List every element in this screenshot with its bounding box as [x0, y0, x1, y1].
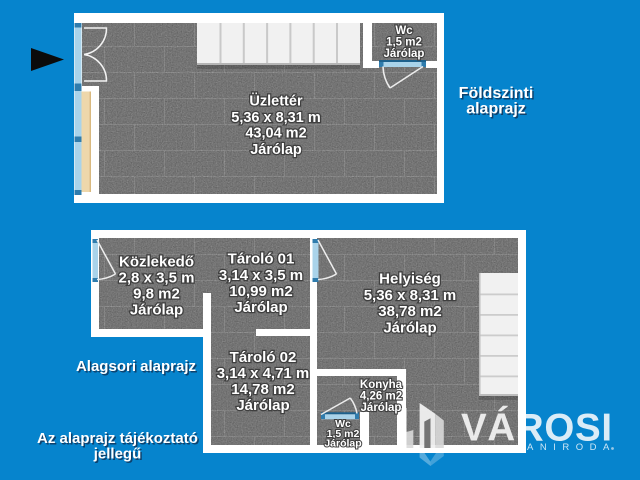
svg-text:Járólap: Járólap — [383, 319, 436, 336]
svg-text:2,8 x 3,5 m: 2,8 x 3,5 m — [119, 270, 195, 287]
svg-text:Helyiség: Helyiség — [379, 271, 441, 288]
svg-text:4,26 m2: 4,26 m2 — [360, 391, 402, 403]
svg-text:Konyha: Konyha — [360, 379, 403, 391]
svg-text:Járólap: Járólap — [324, 438, 361, 450]
svg-text:Járólap: Járólap — [130, 302, 183, 319]
svg-text:Tároló 02: Tároló 02 — [230, 349, 297, 366]
svg-text:Járólap: Járólap — [384, 48, 425, 60]
svg-text:10,99 m2: 10,99 m2 — [229, 283, 292, 300]
svg-text:Járólap: Járólap — [236, 397, 289, 414]
svg-text:Alagsori alaprajz: Alagsori alaprajz — [76, 358, 196, 375]
svg-text:43,04 m2: 43,04 m2 — [245, 126, 306, 142]
svg-text:9,8 m2: 9,8 m2 — [133, 286, 180, 303]
svg-text:Járólap: Járólap — [250, 142, 302, 158]
svg-text:ANIRODA: ANIRODA — [527, 442, 616, 453]
svg-text:5,36 x 8,31 m: 5,36 x 8,31 m — [231, 110, 321, 126]
svg-text:alaprajz: alaprajz — [466, 101, 526, 118]
svg-text:Az alaprajz tájékoztató: Az alaprajz tájékoztató — [37, 430, 198, 447]
svg-text:Közlekedő: Közlekedő — [119, 254, 194, 271]
svg-text:3,14 x 3,5 m: 3,14 x 3,5 m — [219, 267, 303, 284]
svg-text:1,5 m2: 1,5 m2 — [386, 37, 422, 49]
svg-text:Járólap: Járólap — [361, 402, 402, 414]
svg-text:Földszinti: Földszinti — [459, 85, 534, 102]
svg-text:Tároló 01: Tároló 01 — [228, 251, 295, 268]
svg-text:3,14 x 4,71 m: 3,14 x 4,71 m — [217, 365, 310, 382]
svg-text:Járólap: Járólap — [234, 299, 287, 316]
svg-text:38,78 m2: 38,78 m2 — [378, 303, 441, 320]
svg-text:14,78 m2: 14,78 m2 — [231, 381, 294, 398]
svg-text:Üzlettér: Üzlettér — [249, 93, 303, 110]
svg-text:Wc: Wc — [395, 25, 413, 37]
svg-text:jellegű: jellegű — [93, 446, 142, 463]
svg-text:5,36 x 8,31 m: 5,36 x 8,31 m — [364, 287, 457, 304]
